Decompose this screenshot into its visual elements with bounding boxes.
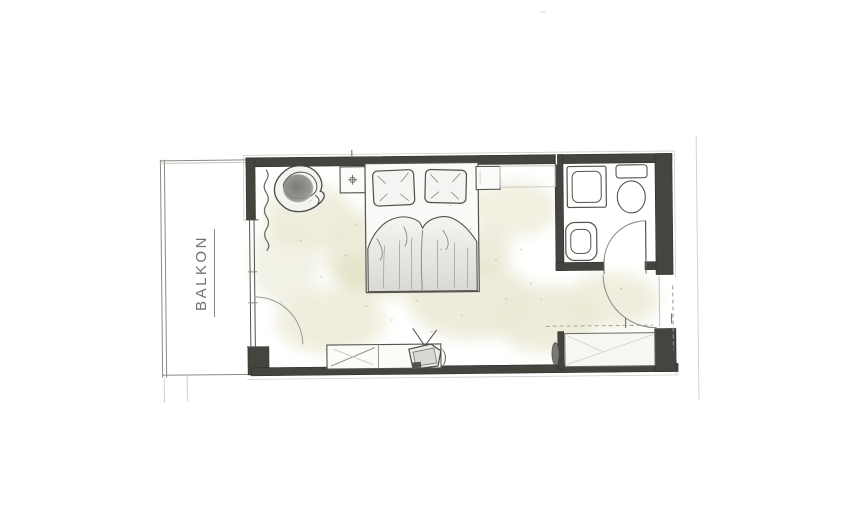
wall-right bbox=[655, 153, 673, 274]
sink bbox=[566, 222, 597, 260]
armchair bbox=[274, 165, 324, 211]
bathroom bbox=[565, 165, 648, 264]
shower bbox=[567, 166, 606, 207]
wall-bathroom-bottom bbox=[556, 262, 604, 271]
wall-bathroom-left bbox=[555, 155, 564, 271]
duvet bbox=[367, 216, 477, 292]
nightstand-left bbox=[340, 167, 365, 193]
balcony-label: BALKON bbox=[193, 229, 215, 317]
pillow-left bbox=[372, 169, 415, 206]
nightstand-right bbox=[476, 166, 500, 189]
wall-left-upper bbox=[246, 158, 256, 220]
property-line bbox=[696, 135, 699, 399]
pillow-right bbox=[425, 169, 467, 203]
door-panel bbox=[552, 343, 559, 365]
bathroom-door bbox=[604, 221, 646, 263]
floor-plan bbox=[0, 0, 860, 530]
wardrobe-niche bbox=[552, 333, 655, 367]
floor-plan-page: BALKON bbox=[0, 0, 860, 530]
toilet bbox=[616, 165, 648, 213]
double-bed bbox=[365, 162, 479, 292]
